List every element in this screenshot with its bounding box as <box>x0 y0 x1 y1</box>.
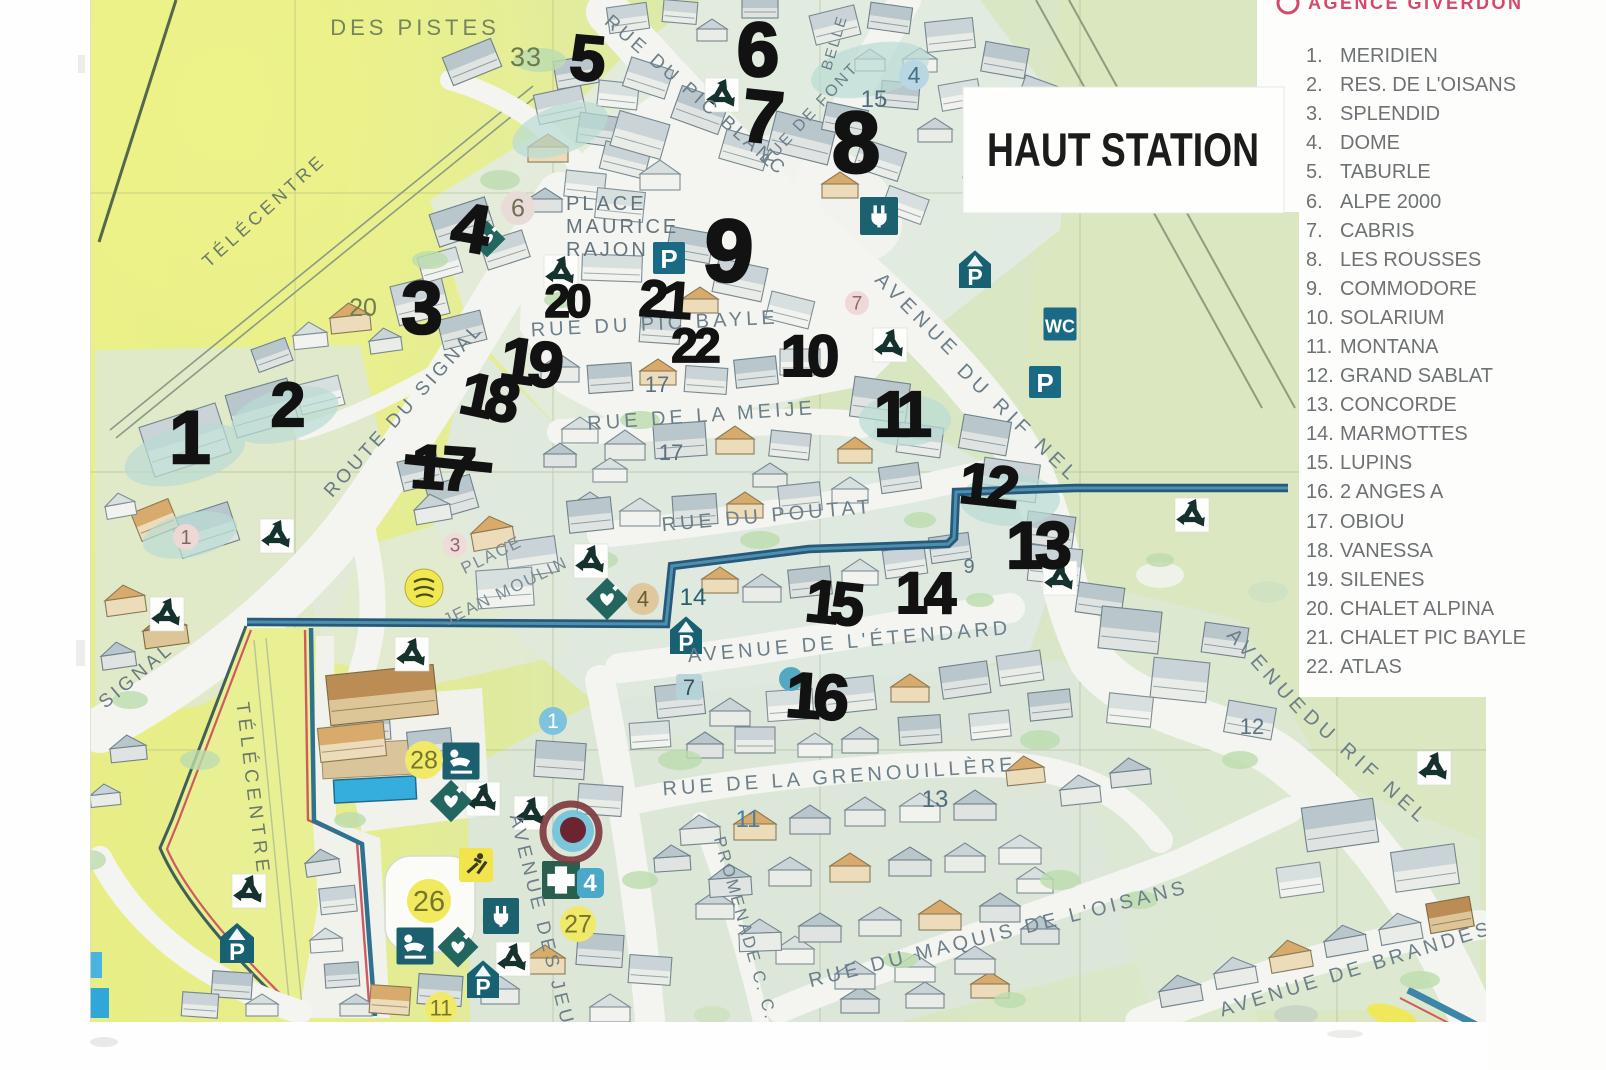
svg-text:P: P <box>475 974 490 1000</box>
svg-text:ALPE 2000: ALPE 2000 <box>1340 191 1441 213</box>
svg-text:1: 1 <box>180 527 191 549</box>
svg-text:13.: 13. <box>1306 394 1334 416</box>
svg-text:2 ANGES A: 2 ANGES A <box>1340 481 1444 503</box>
svg-text:10: 10 <box>781 324 837 389</box>
svg-text:3: 3 <box>401 266 442 349</box>
svg-text:8.: 8. <box>1306 249 1323 271</box>
svg-text:VANESSA: VANESSA <box>1340 540 1434 562</box>
svg-text:CONCORDE: CONCORDE <box>1340 394 1457 416</box>
svg-text:5.: 5. <box>1306 161 1323 183</box>
svg-text:6: 6 <box>511 195 525 223</box>
svg-text:6.: 6. <box>1306 191 1323 213</box>
svg-text:11: 11 <box>874 378 930 450</box>
svg-text:22: 22 <box>671 320 719 373</box>
svg-text:11: 11 <box>736 806 761 833</box>
svg-text:3.: 3. <box>1306 103 1323 125</box>
svg-text:ATLAS: ATLAS <box>1340 656 1402 678</box>
svg-text:MERIDIEN: MERIDIEN <box>1340 45 1438 67</box>
svg-text:11.: 11. <box>1306 336 1332 358</box>
svg-text:GRAND SABLAT: GRAND SABLAT <box>1340 365 1493 387</box>
svg-text:27: 27 <box>564 911 592 939</box>
svg-text:SOLARIUM: SOLARIUM <box>1340 307 1444 329</box>
svg-text:7.: 7. <box>1306 220 1323 242</box>
svg-text:P: P <box>967 264 982 290</box>
svg-text:CABRIS: CABRIS <box>1340 220 1414 242</box>
svg-text:28: 28 <box>410 747 438 775</box>
svg-text:14.: 14. <box>1306 423 1334 445</box>
svg-text:14: 14 <box>896 561 956 626</box>
svg-text:16.: 16. <box>1306 481 1334 503</box>
svg-text:9: 9 <box>963 556 974 578</box>
svg-text:1: 1 <box>169 396 210 479</box>
svg-text:20: 20 <box>349 294 377 322</box>
svg-text:SILENES: SILENES <box>1340 569 1424 591</box>
svg-text:9: 9 <box>700 199 757 302</box>
svg-text:12: 12 <box>1240 714 1264 739</box>
svg-text:MONTANA: MONTANA <box>1340 336 1439 358</box>
svg-text:LUPINS: LUPINS <box>1340 452 1412 474</box>
svg-text:8: 8 <box>832 95 880 191</box>
svg-text:5: 5 <box>567 21 609 96</box>
svg-text:2: 2 <box>271 371 305 440</box>
svg-text:RAJON: RAJON <box>566 239 649 261</box>
svg-text:7: 7 <box>683 675 695 700</box>
svg-text:DES PISTES: DES PISTES <box>330 15 500 40</box>
svg-text:22.: 22. <box>1306 656 1334 678</box>
svg-text:33: 33 <box>510 42 542 72</box>
svg-text:21.: 21. <box>1306 627 1334 649</box>
svg-text:13: 13 <box>1006 508 1070 582</box>
svg-text:OBIOU: OBIOU <box>1340 511 1404 533</box>
svg-text:4: 4 <box>637 586 649 611</box>
svg-text:17: 17 <box>659 440 683 465</box>
svg-text:4: 4 <box>908 62 921 88</box>
svg-text:19.: 19. <box>1306 569 1334 591</box>
svg-text:13: 13 <box>922 786 949 813</box>
svg-text:15.: 15. <box>1306 452 1334 474</box>
svg-text:CHALET ALPINA: CHALET ALPINA <box>1340 598 1495 620</box>
svg-text:HAUT STATION: HAUT STATION <box>987 123 1259 176</box>
svg-text:PLACE: PLACE <box>566 193 647 215</box>
svg-text:2.: 2. <box>1306 74 1323 96</box>
svg-text:7: 7 <box>852 293 863 314</box>
svg-text:1.: 1. <box>1306 45 1323 67</box>
svg-text:TABURLE: TABURLE <box>1340 161 1431 183</box>
svg-text:4: 4 <box>583 870 597 897</box>
svg-text:17: 17 <box>645 372 669 397</box>
svg-text:3: 3 <box>450 535 461 556</box>
svg-text:WC: WC <box>1045 316 1075 336</box>
svg-text:20.: 20. <box>1306 598 1334 620</box>
svg-text:P: P <box>1036 368 1053 398</box>
svg-text:SPLENDID: SPLENDID <box>1340 103 1440 125</box>
svg-text:20: 20 <box>544 275 590 327</box>
svg-text:AGENCE GIVERDON: AGENCE GIVERDON <box>1308 0 1524 13</box>
svg-text:LES ROUSSES: LES ROUSSES <box>1340 249 1481 271</box>
svg-text:11: 11 <box>430 995 453 1020</box>
svg-text:MAURICE: MAURICE <box>566 216 679 238</box>
svg-text:P: P <box>229 939 245 966</box>
svg-text:12.: 12. <box>1306 365 1334 387</box>
svg-text:10.: 10. <box>1306 307 1334 329</box>
svg-text:P: P <box>660 244 677 274</box>
svg-text:RES. DE L'OISANS: RES. DE L'OISANS <box>1340 74 1516 96</box>
svg-text:9.: 9. <box>1306 278 1323 300</box>
svg-text:26: 26 <box>413 886 445 918</box>
svg-text:MARMOTTES: MARMOTTES <box>1340 423 1468 445</box>
svg-text:7: 7 <box>738 73 788 160</box>
svg-text:CHALET PIC BAYLE: CHALET PIC BAYLE <box>1340 627 1526 649</box>
svg-text:4.: 4. <box>1306 132 1323 154</box>
svg-text:DOME: DOME <box>1340 132 1400 154</box>
svg-text:1: 1 <box>547 710 559 733</box>
svg-text:14: 14 <box>680 584 707 611</box>
svg-text:17.: 17. <box>1306 511 1334 533</box>
svg-text:COMMODORE: COMMODORE <box>1340 278 1477 300</box>
svg-text:18.: 18. <box>1306 540 1334 562</box>
